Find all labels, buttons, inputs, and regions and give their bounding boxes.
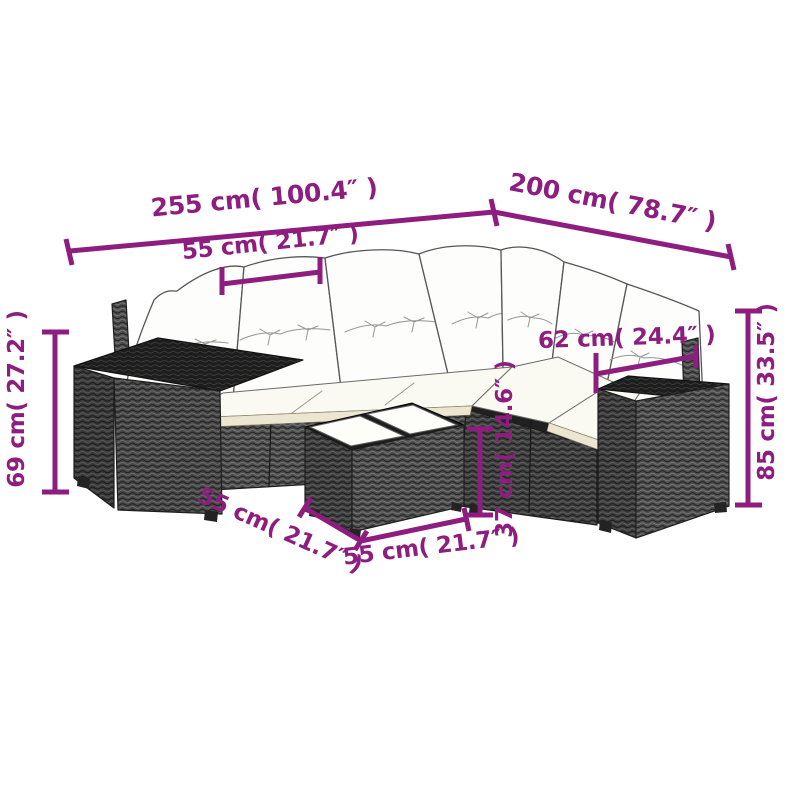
table-height-label: 37 cm( 14.6″ ) xyxy=(492,360,518,537)
sofa-illustration xyxy=(74,246,729,538)
overall-width-label: 255 cm( 100.4″ ) xyxy=(150,173,379,223)
dimension-seat-height: 69 cm( 27.2″ ) xyxy=(4,310,69,492)
right-armrest-cube xyxy=(598,376,729,538)
diagram-canvas: 255 cm( 100.4″ ) 200 cm( 78.7″ ) 55 cm( … xyxy=(0,0,800,800)
dimension-total-height: 85 cm( 33.5″ ) xyxy=(735,303,780,505)
table-width-label: 55 cm( 21.7″ ) xyxy=(341,523,520,570)
seat-height-label: 69 cm( 27.2″ ) xyxy=(4,310,30,487)
overall-depth-label: 200 cm( 78.7″ ) xyxy=(507,167,719,236)
total-height-label: 85 cm( 33.5″ ) xyxy=(754,303,780,480)
coffee-table xyxy=(305,403,464,538)
product-dimension-diagram: 255 cm( 100.4″ ) 200 cm( 78.7″ ) 55 cm( … xyxy=(0,0,800,800)
